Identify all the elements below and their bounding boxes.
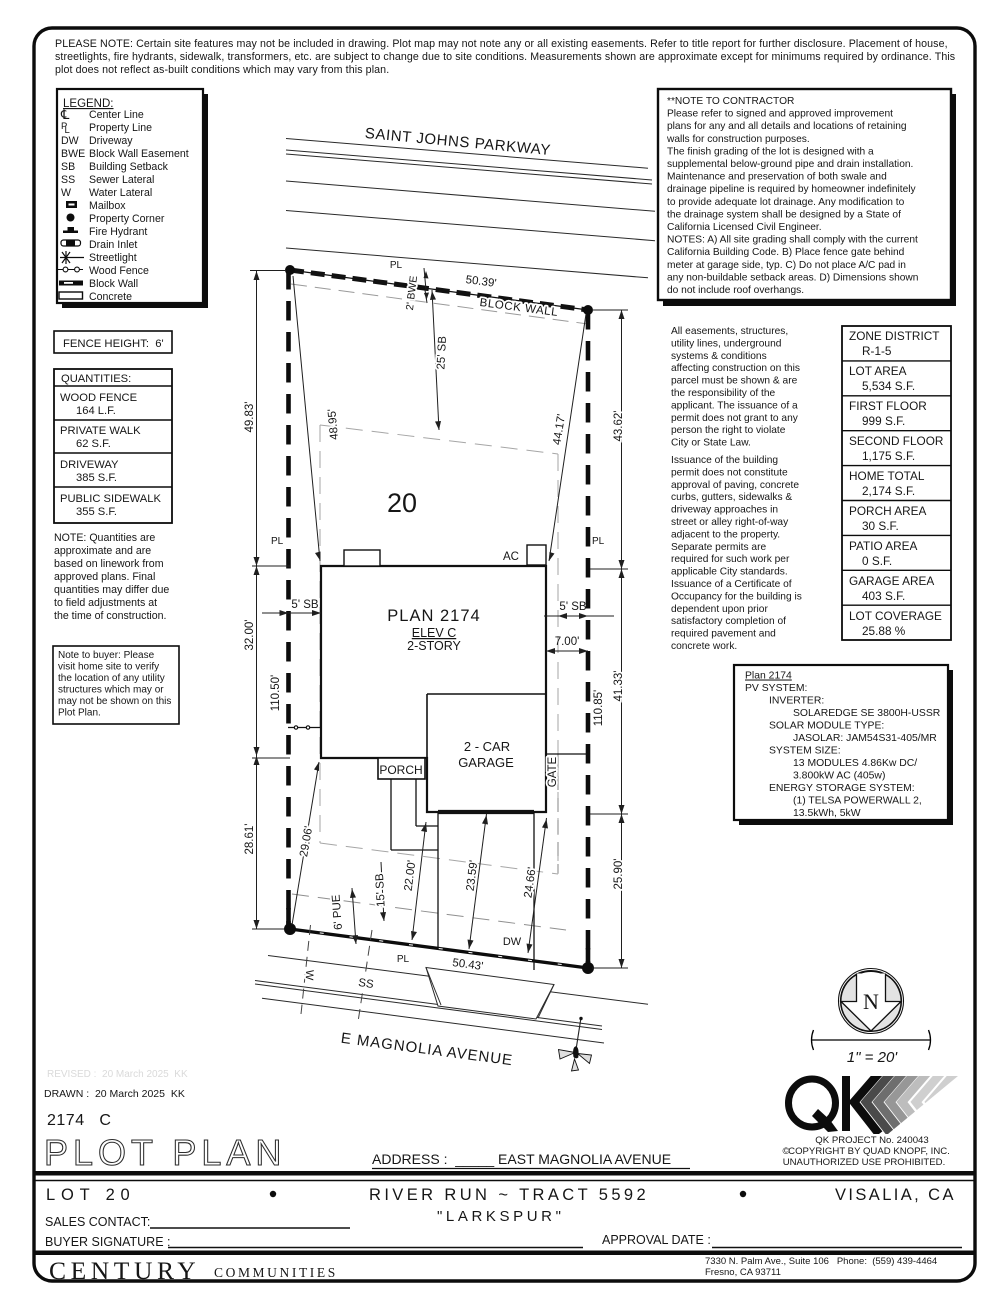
svg-text:2,174 S.F.: 2,174 S.F. [862,484,915,498]
svg-text:UNAUTHORIZED USE PROHIBITED.: UNAUTHORIZED USE PROHIBITED. [783,1157,946,1168]
svg-text:systems & conditions: systems & conditions [671,351,767,362]
svg-text:PL: PL [592,536,605,547]
svg-text:403 S.F.: 403 S.F. [862,589,905,603]
svg-text:BWE: BWE [61,148,85,160]
svg-text:"LARKSPUR": "LARKSPUR" [437,1208,565,1225]
svg-text:The finish grading of the lot: The finish grading of the lot is designe… [667,146,874,157]
svg-text:adjacent to the property.: adjacent to the property. [671,529,780,540]
svg-text:structures which may or: structures which may or [58,685,164,696]
svg-text:to field adjustments at: to field adjustments at [54,597,157,609]
svg-text:GARAGE: GARAGE [458,755,514,770]
svg-text:COPYRIGHT BY QUAD KNOPF, INC.: COPYRIGHT BY QUAD KNOPF, INC. [788,1146,950,1157]
svg-text:(1) TELSA POWERWALL 2,: (1) TELSA POWERWALL 2, [793,796,922,807]
svg-text:applicant. The issuance of a: applicant. The issuance of a [671,400,798,411]
svg-text:ELEV C: ELEV C [412,626,456,640]
svg-text:32.00': 32.00' [244,620,256,651]
svg-text:required for such work per: required for such work per [671,554,790,565]
svg-text:NOTES: A) All site grading sh: NOTES: A) All site grading shall comply … [667,235,918,246]
svg-text:25.90': 25.90' [613,859,625,890]
svg-text:DRAWN : 20 March 2025 KK: DRAWN : 20 March 2025 KK [44,1088,185,1100]
svg-text:SS: SS [61,174,75,186]
svg-text:concrete work.: concrete work. [671,641,737,652]
svg-text:to provide adequate lot draina: to provide adequate lot drainage. Any mo… [667,197,905,208]
svg-text:**NOTE TO CONTRACTOR: **NOTE TO CONTRACTOR [667,96,794,107]
svg-text:Streetlight: Streetlight [89,252,137,264]
svg-text:walls for construction purpose: walls for construction purposes. [666,134,810,145]
svg-text:affecting construction on this: affecting construction on this [671,363,800,374]
svg-text:INVERTER:: INVERTER: [769,696,824,707]
svg-text:PUBLIC SIDEWALK: PUBLIC SIDEWALK [60,493,161,505]
svg-text:dependent upon prior: dependent upon prior [671,604,768,615]
svg-text:permit does not constitute: permit does not constitute [671,467,788,478]
svg-text:the responsibility of the: the responsibility of the [671,388,776,399]
svg-text:PLOT PLAN: PLOT PLAN [44,1132,286,1173]
svg-text:QUANTITIES:: QUANTITIES: [61,373,131,385]
svg-text:approval of paving, concrete: approval of paving, concrete [671,480,799,491]
svg-text:ADDRESS : _____ EAST MAGNOLIA: ADDRESS : _____ EAST MAGNOLIA AVENUE [372,1151,671,1167]
svg-text:parcel must be shown & are: parcel must be shown & are [671,376,798,387]
svg-text:any non-buildable setback area: any non-buildable setback areas. D) Dime… [667,272,918,283]
svg-text:the drainage system shall be d: the drainage system shall be designed by… [667,209,901,220]
svg-text:385 S.F.: 385 S.F. [76,472,117,484]
svg-text:SALES CONTACT:: SALES CONTACT: [45,1215,150,1229]
svg-text:PLEASE NOTE: Certain site fea: PLEASE NOTE: Certain site features may n… [55,38,948,50]
svg-text:SOLAR MODULE TYPE:: SOLAR MODULE TYPE: [769,721,884,732]
svg-text:QK PROJECT No. 240043: QK PROJECT No. 240043 [815,1135,928,1146]
svg-text:Occupancy for the building is: Occupancy for the building is [671,591,802,602]
svg-text:APPROVAL DATE :: APPROVAL DATE : [602,1233,711,1247]
svg-text:1,175 S.F.: 1,175 S.F. [862,449,915,463]
svg-text:PORCH AREA: PORCH AREA [849,504,926,518]
svg-text:R-1-5: R-1-5 [862,344,892,358]
svg-text:REVISED : 20 March 2025 KK: REVISED : 20 March 2025 KK [47,1069,188,1080]
svg-text:Fresno, CA 93711: Fresno, CA 93711 [705,1267,781,1278]
svg-text:plot does not reflect as-built: plot does not reflect as-built condition… [55,64,389,76]
svg-text:DRIVEWAY: DRIVEWAY [60,459,119,471]
svg-text:GATE: GATE [547,756,559,787]
svg-text:5' SB: 5' SB [291,599,318,611]
svg-text:applicable City standards.: applicable City standards. [671,567,788,578]
svg-text:PATIO AREA: PATIO AREA [849,539,918,553]
svg-text:WOOD FENCE: WOOD FENCE [60,392,137,404]
svg-text:Fire Hydrant: Fire Hydrant [89,226,147,238]
svg-text:110.50': 110.50' [270,675,282,712]
svg-text:street or alley right-of-way: street or alley right-of-way [671,517,789,528]
svg-text:satisfactory completion of: satisfactory completion of [671,616,786,627]
svg-text:20: 20 [387,488,417,518]
svg-text:City or State Law.: City or State Law. [671,438,751,449]
svg-text:BUYER SIGNATURE :: BUYER SIGNATURE : [45,1235,170,1249]
svg-text:©: © [782,1146,789,1157]
svg-text:W: W [61,187,71,199]
svg-text:PRIVATE WALK: PRIVATE WALK [60,425,141,437]
svg-text:may not be shown on this: may not be shown on this [58,696,171,707]
svg-text:LOT COVERAGE: LOT COVERAGE [849,609,942,623]
svg-text:VISALIA, CA: VISALIA, CA [835,1186,956,1204]
svg-text:SB: SB [61,161,75,173]
svg-text:PLAN 2174: PLAN 2174 [387,607,480,625]
svg-text:CENTURY: CENTURY [49,1256,200,1285]
svg-text:Separate permits are: Separate permits are [671,542,766,553]
svg-text:PL: PL [271,536,284,547]
svg-text:the location of any utility: the location of any utility [58,673,165,684]
svg-text:PV SYSTEM:: PV SYSTEM: [745,683,807,694]
svg-text:Issuance of the building: Issuance of the building [671,455,778,466]
svg-text:person the right to violate: person the right to violate [671,425,786,436]
svg-text:355 S.F.: 355 S.F. [76,506,117,518]
svg-text:Note to buyer: Please: Note to buyer: Please [58,650,155,661]
svg-text:Please refer to signed and app: Please refer to signed and approved impr… [667,109,893,120]
svg-text:LOT AREA: LOT AREA [849,364,907,378]
svg-text:DW: DW [503,936,522,948]
svg-text:drainage pipeline is required: drainage pipeline is required by homeown… [667,184,917,195]
svg-text:110.85': 110.85' [593,690,605,727]
svg-text:approved plans. Final: approved plans. Final [54,571,155,583]
svg-text:W: W [303,969,316,981]
svg-text:Property Corner: Property Corner [89,213,165,225]
svg-text:℄: ℄ [60,107,70,122]
svg-text:permit does not grant to any: permit does not grant to any [671,413,799,424]
svg-text:N: N [863,989,879,1014]
svg-text:the time of construction.: the time of construction. [54,610,166,622]
svg-text:SECOND FLOOR: SECOND FLOOR [849,434,943,448]
svg-text:do not include roof overhangs.: do not include roof overhangs. [667,285,804,296]
svg-text:2174 C: 2174 C [47,1112,111,1129]
svg-text:0 S.F.: 0 S.F. [862,554,892,568]
svg-text:supplemental below-ground pipe: supplemental below-ground pipe and drain… [667,159,913,170]
svg-text:ENERGY STORAGE SYSTEM:: ENERGY STORAGE SYSTEM: [769,783,915,794]
svg-text:3.800kW AC (405w): 3.800kW AC (405w) [793,771,885,782]
svg-text:7.00': 7.00' [555,636,580,648]
svg-text:All easements, structures,: All easements, structures, [671,326,788,337]
svg-text:6' PUE: 6' PUE [330,894,344,931]
svg-text:required pavement and: required pavement and [671,629,776,640]
svg-text:Water Lateral: Water Lateral [89,187,152,199]
svg-text:COMMUNITIES: COMMUNITIES [214,1265,338,1280]
svg-text:ZONE DISTRICT: ZONE DISTRICT [849,329,939,343]
svg-text:7330 N. Palm Ave., Suite 106: 7330 N. Palm Ave., Suite 106 Phone: (559… [705,1256,937,1267]
svg-text:SOLAREDGE SE 3800H-USSR: SOLAREDGE SE 3800H-USSR [793,708,941,719]
svg-text:25' SB: 25' SB [435,335,449,369]
svg-text:41.33': 41.33' [613,671,625,702]
svg-text:5' SB: 5' SB [559,601,586,613]
svg-text:999 S.F.: 999 S.F. [862,414,905,428]
svg-text:driveway approaches in: driveway approaches in [671,505,778,516]
svg-text:quantities may differ due: quantities may differ due [54,584,169,596]
svg-text:FIRST FLOOR: FIRST FLOOR [849,399,927,413]
svg-text:SYSTEM SIZE:: SYSTEM SIZE: [769,746,841,757]
svg-text:California Licensed Civil Engi: California Licensed Civil Engineer. [667,222,822,233]
svg-text:Plan 2174: Plan 2174 [745,671,792,682]
svg-text:based on linework from: based on linework from [54,558,164,570]
svg-text:LOT 20: LOT 20 [46,1186,136,1204]
svg-text:43.62': 43.62' [613,411,625,442]
svg-text:SS: SS [357,977,374,991]
svg-text:Driveway: Driveway [89,135,133,147]
svg-text:Wood Fence: Wood Fence [89,265,149,277]
svg-text:plans for any and all details: plans for any and all details and locati… [667,121,907,132]
svg-text:28.61': 28.61' [244,824,256,855]
svg-text:49.83': 49.83' [244,402,256,433]
svg-text:25.88 %: 25.88 % [862,624,906,638]
svg-text:2 - CAR: 2 - CAR [464,739,510,754]
svg-text:Mailbox: Mailbox [89,200,126,212]
svg-text:HOME TOTAL: HOME TOTAL [849,469,925,483]
svg-text:1" = 20': 1" = 20' [847,1049,898,1066]
svg-text:Property Line: Property Line [89,122,152,134]
svg-text:Center Line: Center Line [89,109,144,121]
svg-text:JASOLAR: JAM54S31-405/MR: JASOLAR: JAM54S31-405/MR [793,733,937,744]
svg-text:GARAGE AREA: GARAGE AREA [849,574,934,588]
svg-text:PORCH: PORCH [379,763,422,777]
svg-text:Building Setback: Building Setback [89,161,169,173]
svg-text:5,534 S.F.: 5,534 S.F. [862,379,915,393]
svg-text:13 MODULES 4.86Kw DC/: 13 MODULES 4.86Kw DC/ [793,758,917,769]
svg-text:DW: DW [61,135,79,147]
svg-text:NOTE: Quantities are: NOTE: Quantities are [54,532,155,544]
svg-text:2-STORY: 2-STORY [407,639,461,653]
svg-text:Plot Plan.: Plot Plan. [58,708,101,719]
svg-text:utility lines, underground: utility lines, underground [671,338,782,349]
svg-text:visit home site to verify: visit home site to verify [58,662,159,673]
svg-text:curbs, gutters, sidewalks &: curbs, gutters, sidewalks & [671,492,792,503]
svg-text:Block Wall Easement: Block Wall Easement [89,148,189,160]
svg-text:FENCE HEIGHT: 6': FENCE HEIGHT: 6' [63,338,164,350]
svg-text:Maintenance and preservation o: Maintenance and preservation of both swa… [667,172,887,183]
svg-text:Issuance of a Certificate of: Issuance of a Certificate of [671,579,792,590]
svg-text:AC: AC [503,551,519,563]
svg-text:Drain Inlet: Drain Inlet [89,239,137,251]
svg-text:Concrete: Concrete [89,291,132,303]
svg-text:30 S.F.: 30 S.F. [862,519,899,533]
svg-text:approximate and are: approximate and are [54,545,151,557]
svg-text:meter at garage side, typ. C): meter at garage side, typ. C) Do not pla… [667,260,906,271]
svg-text:Sewer Lateral: Sewer Lateral [89,174,154,186]
svg-text:RIVER RUN ~ TRACT 5592: RIVER RUN ~ TRACT 5592 [369,1186,649,1204]
svg-text:62 S.F.: 62 S.F. [76,438,111,450]
svg-text:13.5kWh, 5kW: 13.5kWh, 5kW [793,808,861,819]
svg-text:streetlights, fire hydrants, s: streetlights, fire hydrants, sidewalk, t… [55,51,955,63]
svg-text:California Building Code. B): California Building Code. B) Place fence… [667,247,905,258]
svg-text:PL: PL [397,954,410,965]
svg-text:Block Wall: Block Wall [89,278,138,290]
svg-text:164 L.F.: 164 L.F. [76,405,116,417]
svg-text:15' SB: 15' SB [374,873,388,907]
svg-text:PL: PL [390,260,403,271]
